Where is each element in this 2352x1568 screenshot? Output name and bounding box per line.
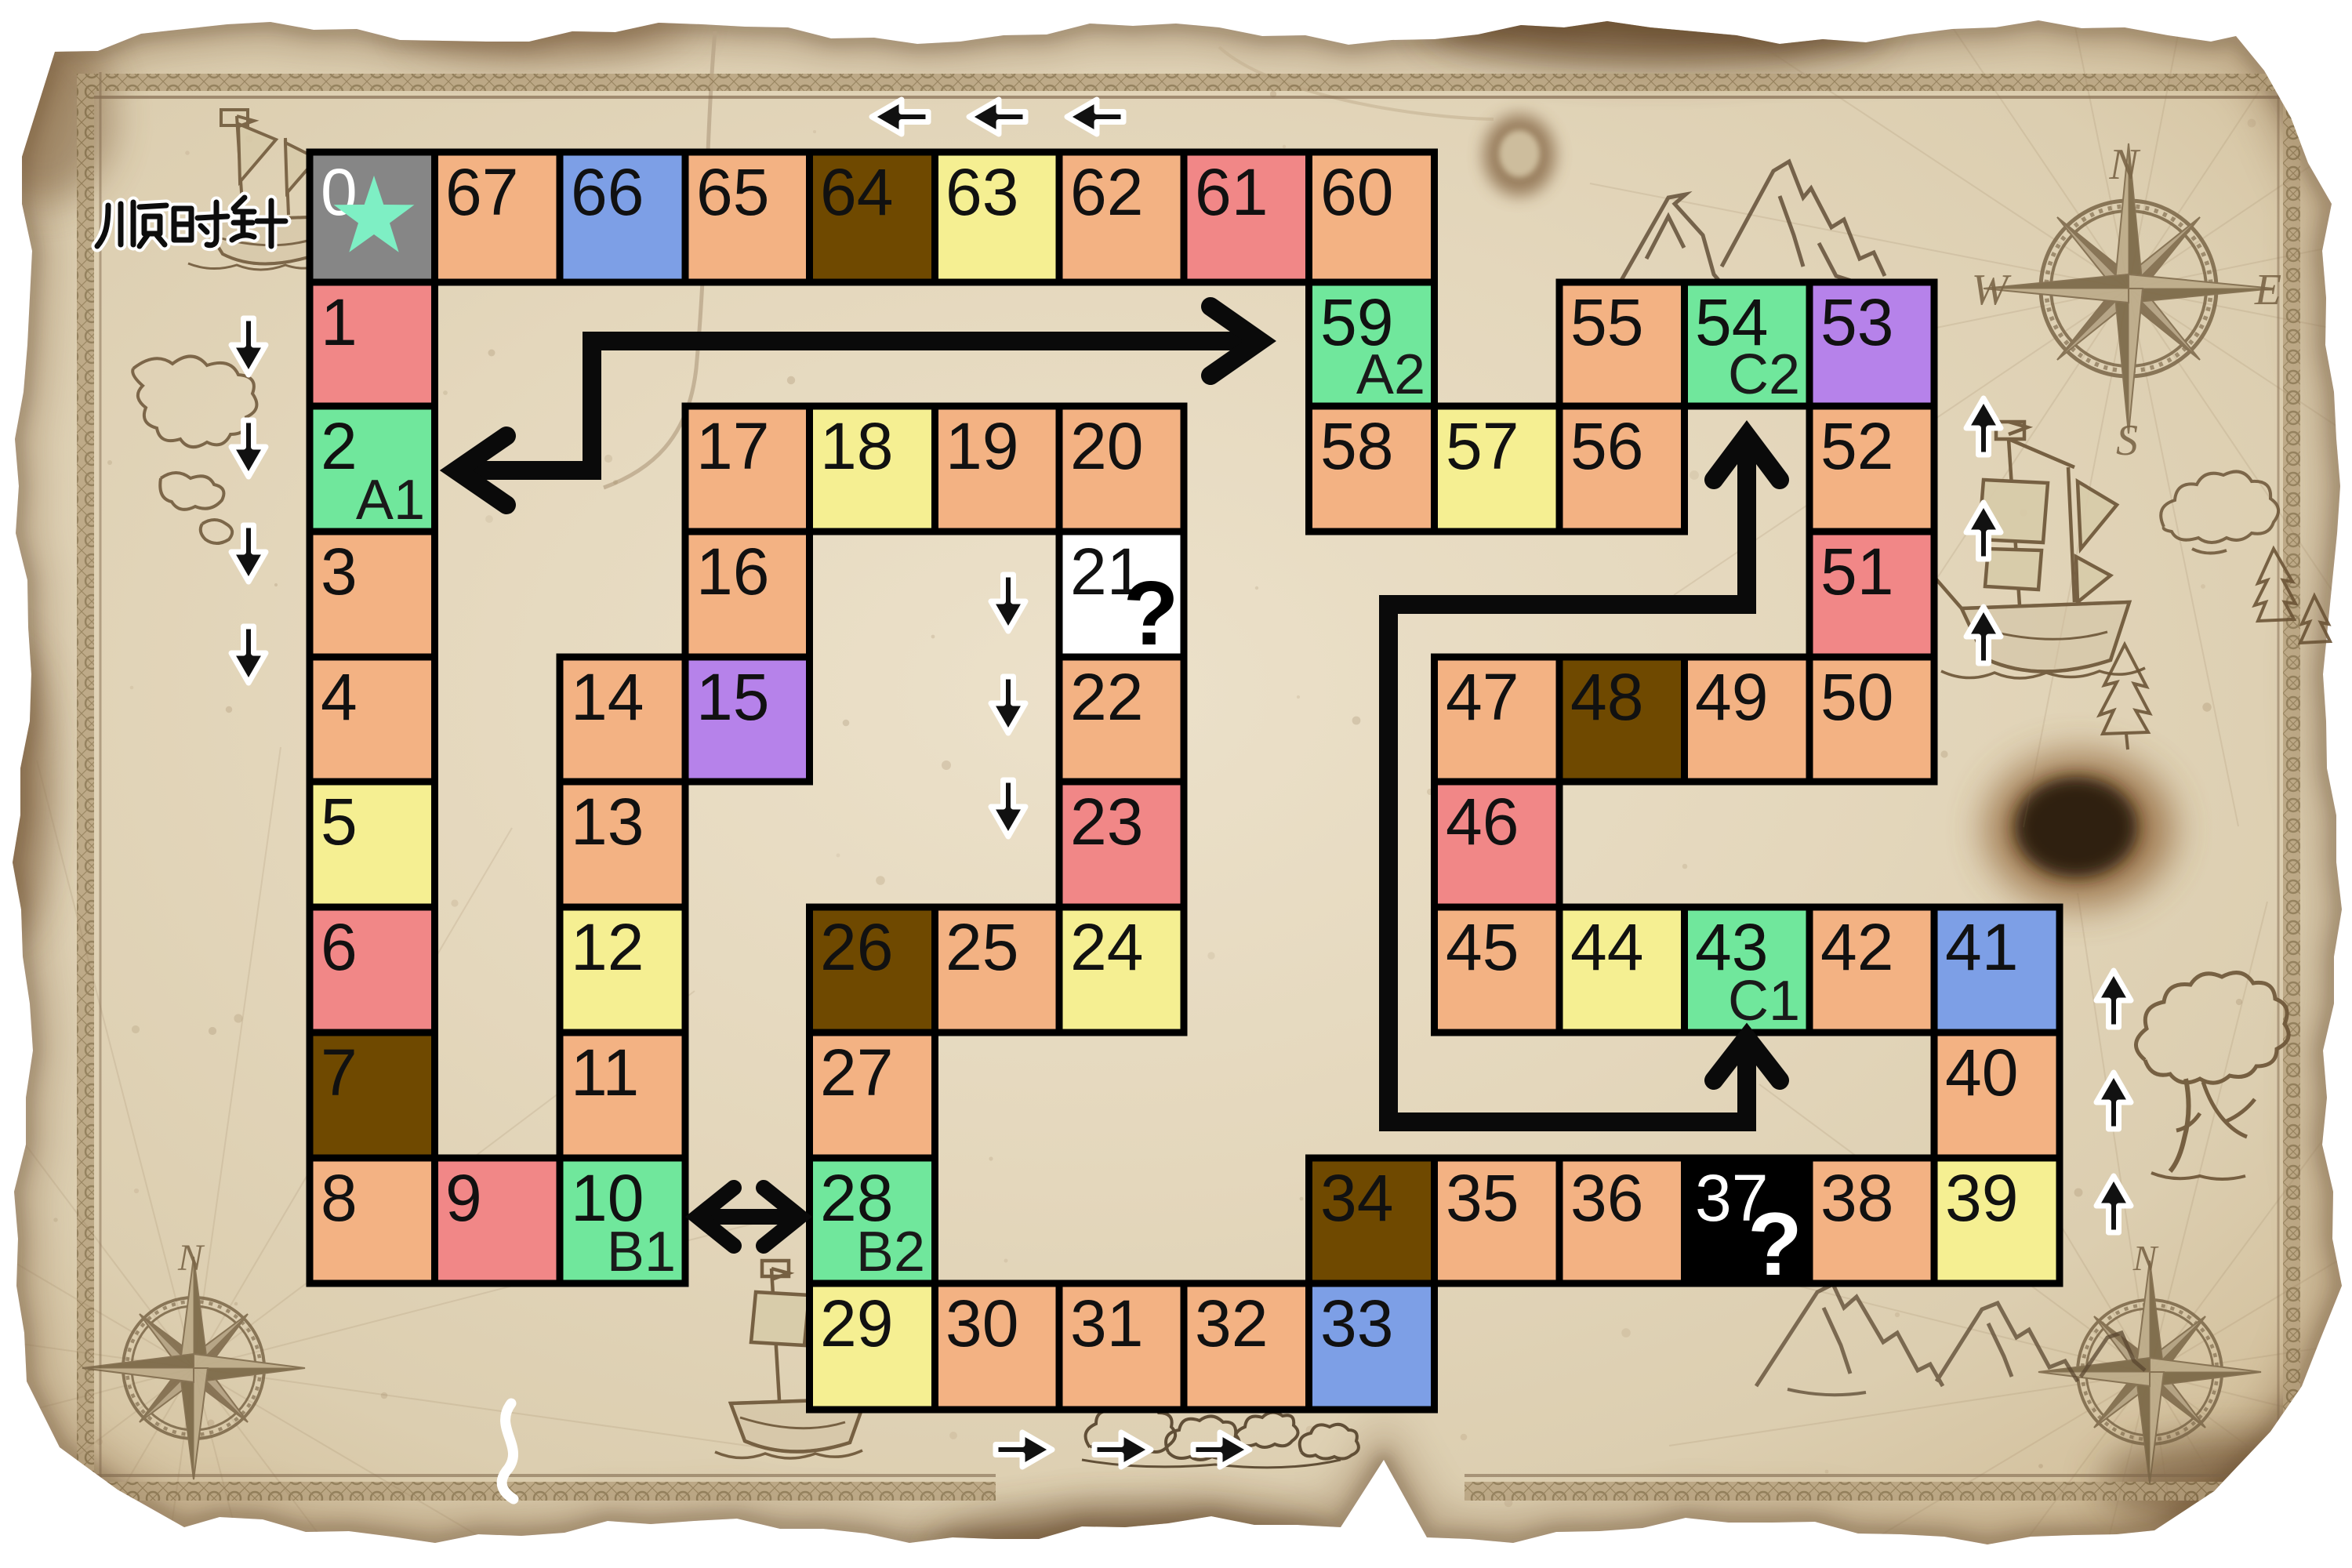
svg-text:8: 8: [321, 1161, 358, 1235]
svg-text:30: 30: [946, 1287, 1018, 1360]
svg-text:66: 66: [571, 155, 644, 229]
svg-text:A2: A2: [1356, 343, 1425, 406]
svg-text:35: 35: [1446, 1161, 1519, 1235]
svg-text:45: 45: [1446, 910, 1519, 984]
svg-text:12: 12: [571, 910, 644, 984]
svg-text:C1: C1: [1728, 970, 1800, 1033]
svg-text:58: 58: [1320, 409, 1393, 483]
svg-text:N: N: [177, 1237, 205, 1279]
svg-text:33: 33: [1320, 1287, 1393, 1360]
svg-text:57: 57: [1446, 409, 1519, 483]
svg-text:25: 25: [946, 910, 1018, 984]
svg-text:50: 50: [1820, 660, 1893, 734]
svg-text:24: 24: [1070, 910, 1143, 984]
svg-text:S: S: [2116, 416, 2138, 465]
svg-text:9: 9: [445, 1161, 482, 1235]
svg-text:15: 15: [696, 660, 769, 734]
svg-text:4: 4: [321, 660, 358, 734]
svg-text:42: 42: [1820, 910, 1893, 984]
svg-text:1: 1: [321, 285, 358, 359]
svg-text:11: 11: [571, 1036, 639, 1109]
svg-text:A1: A1: [356, 469, 425, 532]
svg-text:44: 44: [1570, 910, 1643, 984]
svg-text:51: 51: [1820, 535, 1893, 608]
svg-text:B2: B2: [856, 1221, 925, 1283]
svg-text:13: 13: [571, 785, 644, 858]
svg-text:47: 47: [1446, 660, 1519, 734]
svg-text:2: 2: [321, 409, 358, 483]
svg-text:53: 53: [1820, 285, 1893, 359]
svg-text:38: 38: [1820, 1161, 1893, 1235]
svg-text:27: 27: [820, 1036, 893, 1109]
svg-text:34: 34: [1320, 1161, 1393, 1235]
svg-text:41: 41: [1945, 910, 2018, 984]
svg-text:N: N: [2108, 140, 2140, 189]
svg-text:46: 46: [1446, 785, 1519, 858]
svg-text:22: 22: [1070, 660, 1143, 734]
svg-text:6: 6: [321, 910, 358, 984]
svg-text:48: 48: [1570, 660, 1643, 734]
svg-text:40: 40: [1945, 1036, 2018, 1109]
svg-text:26: 26: [820, 910, 893, 984]
svg-text:32: 32: [1195, 1287, 1268, 1360]
svg-text:64: 64: [820, 155, 893, 229]
svg-text:56: 56: [1570, 409, 1643, 483]
svg-text:5: 5: [321, 785, 358, 858]
svg-text:17: 17: [696, 409, 769, 483]
svg-text:52: 52: [1820, 409, 1893, 483]
svg-text:65: 65: [696, 155, 769, 229]
svg-text:67: 67: [445, 155, 518, 229]
svg-text:E: E: [2254, 266, 2281, 314]
svg-text:62: 62: [1070, 155, 1143, 229]
svg-text:29: 29: [820, 1287, 893, 1360]
svg-text:7: 7: [321, 1036, 358, 1109]
svg-text:14: 14: [571, 660, 644, 734]
svg-text:?: ?: [1748, 1195, 1802, 1294]
svg-text:23: 23: [1070, 785, 1143, 858]
svg-text:55: 55: [1570, 285, 1643, 359]
svg-text:W: W: [1972, 266, 2012, 314]
svg-text:19: 19: [946, 409, 1018, 483]
svg-text:31: 31: [1070, 1287, 1143, 1360]
svg-text:3: 3: [321, 535, 358, 608]
svg-text:B1: B1: [607, 1221, 676, 1283]
svg-text:61: 61: [1195, 155, 1268, 229]
svg-text:C2: C2: [1728, 343, 1800, 406]
svg-text:N: N: [2132, 1238, 2159, 1278]
svg-text:16: 16: [696, 535, 769, 608]
svg-text:18: 18: [820, 409, 893, 483]
svg-text:63: 63: [946, 155, 1018, 229]
svg-text:60: 60: [1320, 155, 1393, 229]
svg-text:36: 36: [1570, 1161, 1643, 1235]
svg-text:20: 20: [1070, 409, 1143, 483]
svg-text:39: 39: [1945, 1161, 2018, 1235]
svg-text:49: 49: [1695, 660, 1768, 734]
svg-text:?: ?: [1123, 562, 1179, 664]
